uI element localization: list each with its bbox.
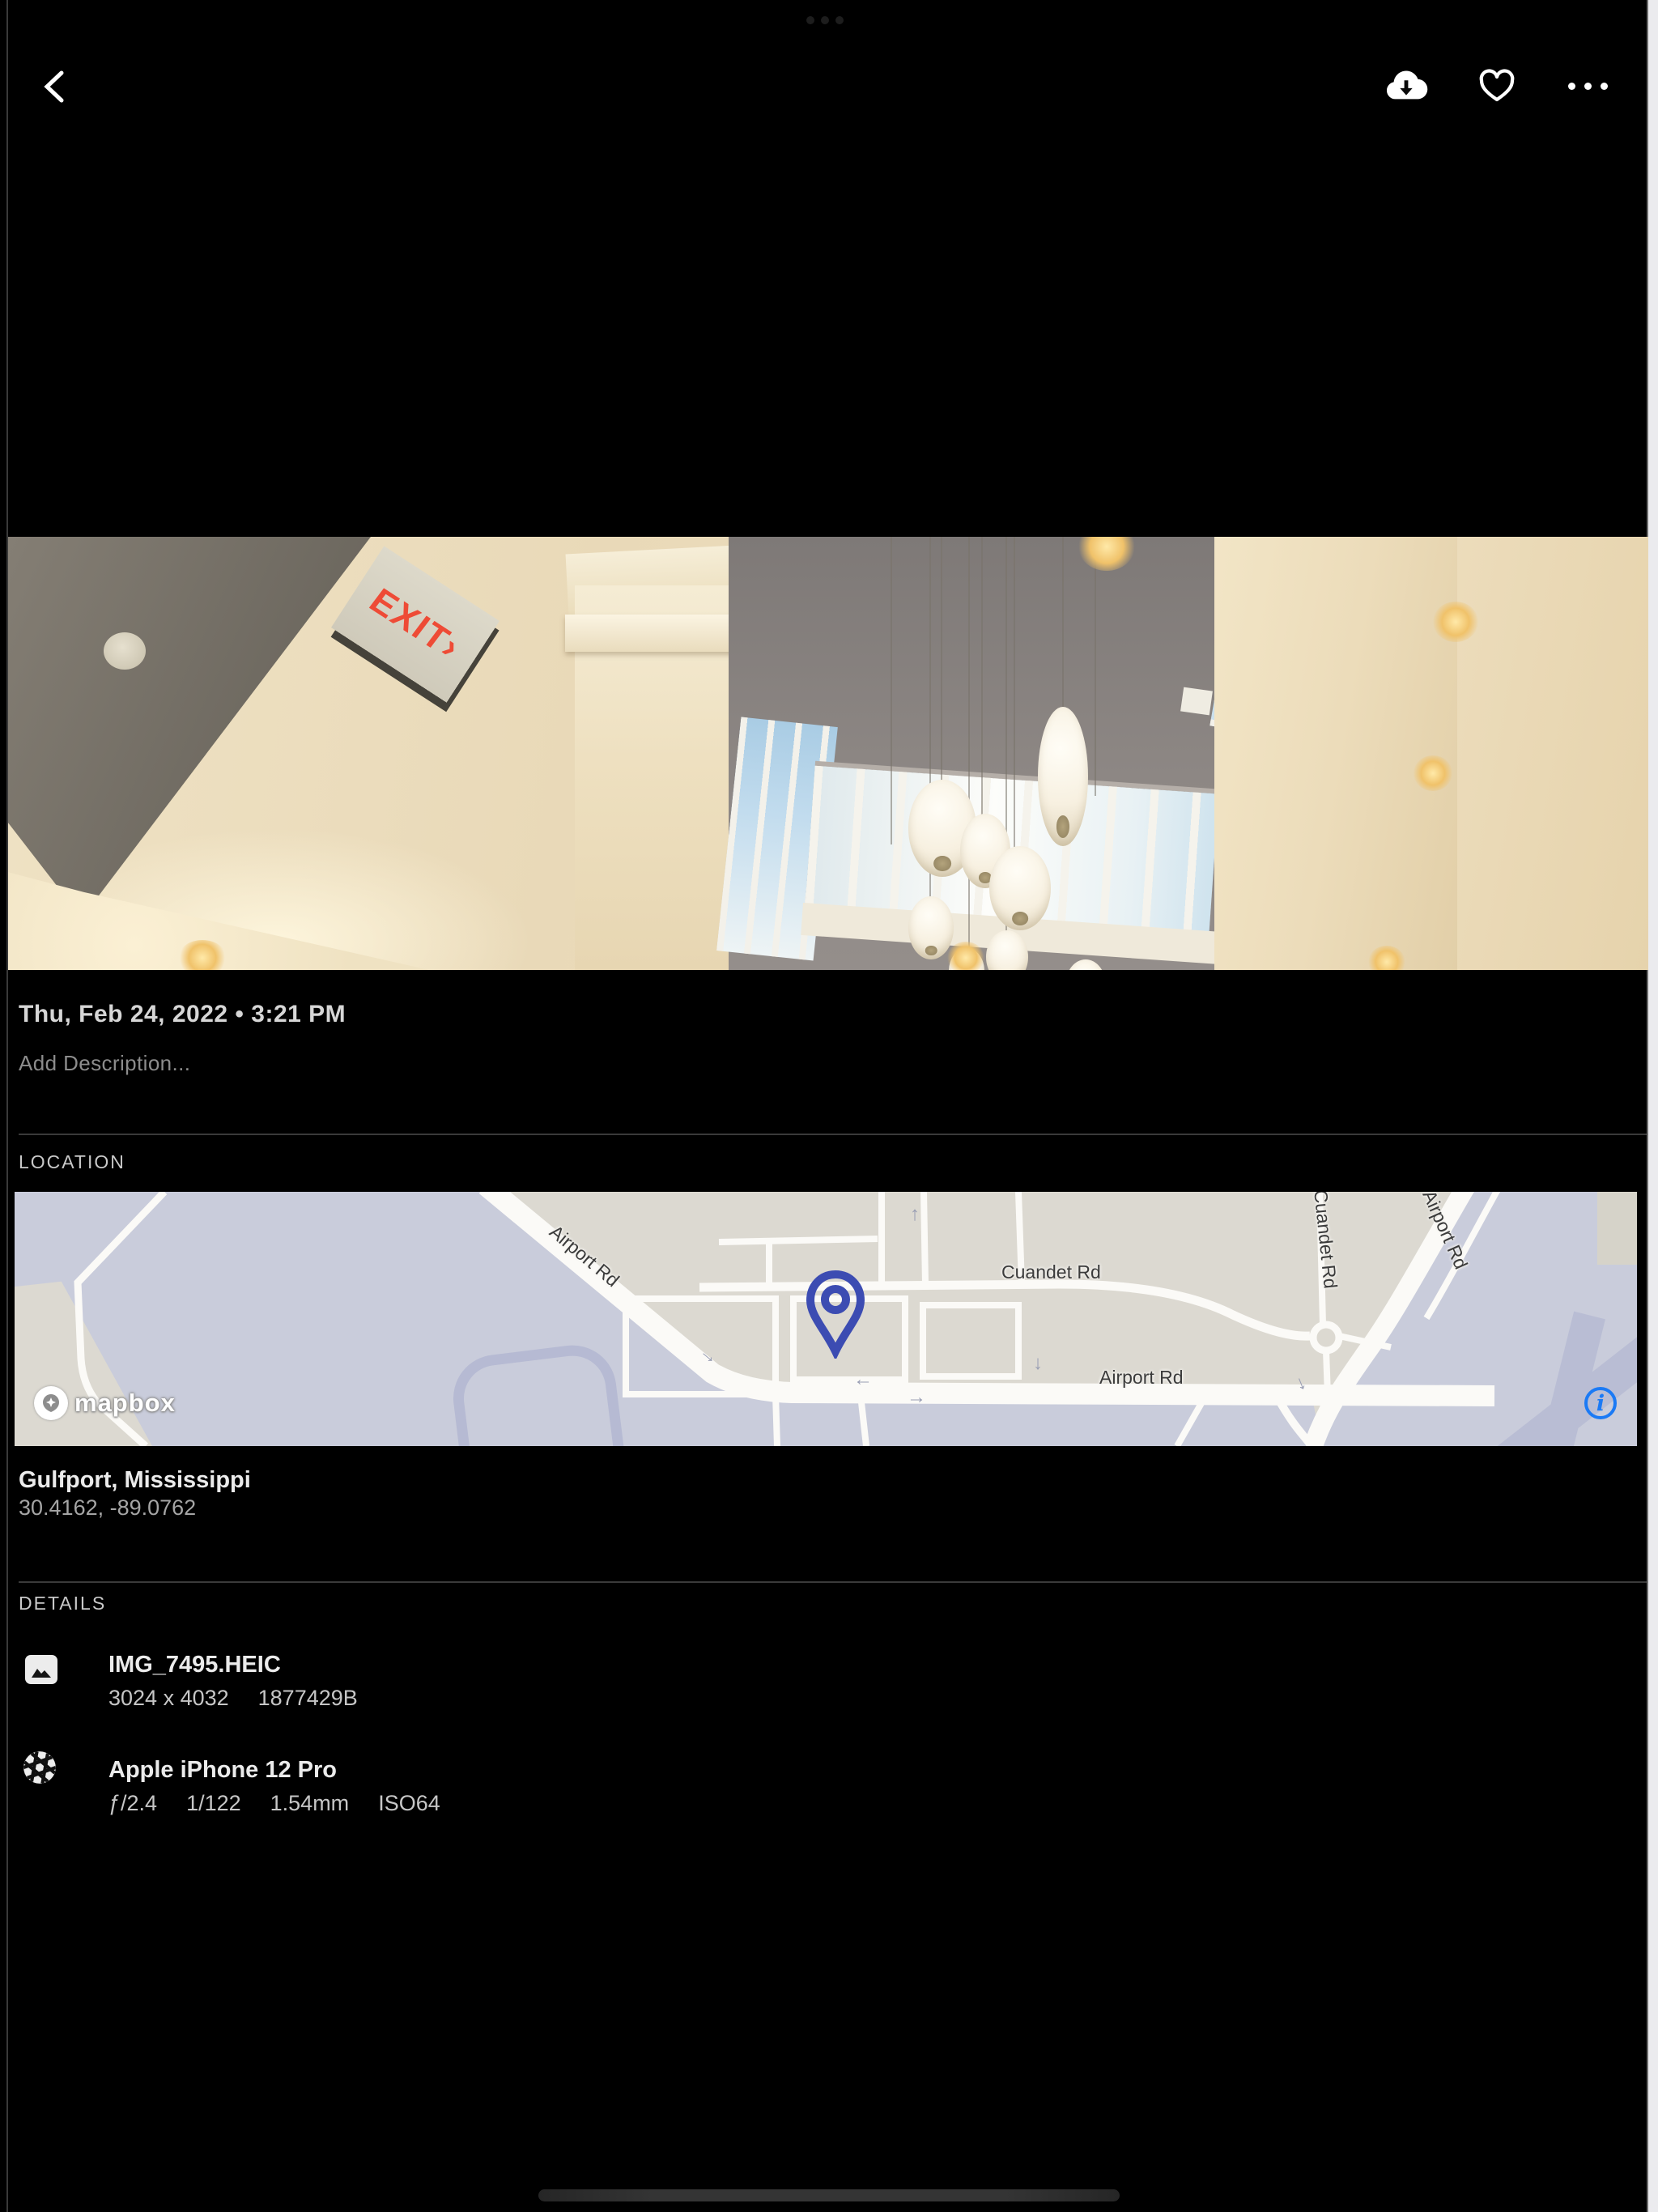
background-app-strip bbox=[1647, 0, 1658, 2212]
photo-exit-sign: EXIT› bbox=[331, 546, 500, 702]
lamp-cord bbox=[891, 537, 892, 844]
lamp-cord bbox=[1014, 537, 1015, 853]
back-button[interactable] bbox=[37, 66, 73, 107]
info-icon: i bbox=[1596, 1391, 1605, 1416]
location-map[interactable]: Airport Rd Cuandet Rd Airport Rd Airport… bbox=[15, 1192, 1637, 1446]
more-options-button[interactable] bbox=[1566, 66, 1609, 105]
mapbox-wordmark: mapbox bbox=[74, 1389, 176, 1418]
map-road-label: Airport Rd bbox=[1099, 1367, 1184, 1389]
photo-smoke-detector bbox=[104, 632, 146, 670]
photo-date: Thu, Feb 24, 2022 • 3:21 PM bbox=[19, 1001, 346, 1028]
chevron-left-icon bbox=[37, 66, 73, 107]
window-left-edge bbox=[6, 0, 8, 2212]
exit-sign-text: EXIT› bbox=[362, 581, 470, 668]
lamp-cord bbox=[981, 537, 983, 820]
photo-right-wall bbox=[1457, 537, 1648, 970]
map-direction-arrow: ← bbox=[853, 1368, 873, 1391]
photo-speaker-box bbox=[1180, 687, 1213, 716]
map-direction-arrow: ↑ bbox=[910, 1203, 920, 1226]
location-coordinates: 30.4162, -89.0762 bbox=[19, 1495, 196, 1521]
divider bbox=[19, 1134, 1647, 1135]
photo-column-molding bbox=[565, 615, 738, 652]
map-info-button[interactable]: i bbox=[1584, 1387, 1617, 1419]
pendant-lamp bbox=[989, 846, 1051, 930]
lamp-cord bbox=[1062, 537, 1064, 711]
mapbox-attribution[interactable]: mapbox bbox=[34, 1386, 176, 1420]
photo-preview[interactable]: EXIT› bbox=[8, 537, 1648, 970]
divider bbox=[19, 1581, 1647, 1583]
map-pin-icon bbox=[803, 1268, 868, 1359]
multitask-handle-icon[interactable] bbox=[806, 16, 844, 24]
camera-meta: ƒ/2.41/1221.54mmISO64 bbox=[108, 1791, 470, 1816]
photo-atrium bbox=[729, 537, 1214, 970]
file-name: IMG_7495.HEIC bbox=[108, 1652, 281, 1678]
favorite-button[interactable] bbox=[1475, 66, 1519, 105]
aperture-icon bbox=[21, 1749, 58, 1790]
lamp-cord bbox=[941, 537, 942, 788]
pendant-lamp bbox=[908, 896, 954, 959]
map-direction-arrow: → bbox=[907, 1386, 926, 1409]
lamp-cord bbox=[1095, 537, 1096, 796]
location-section-label: LOCATION bbox=[19, 1151, 125, 1173]
camera-name: Apple iPhone 12 Pro bbox=[108, 1757, 337, 1784]
details-section-label: DETAILS bbox=[19, 1593, 106, 1614]
location-place: Gulfport, Mississippi bbox=[19, 1467, 251, 1494]
lamp-cord bbox=[968, 537, 970, 966]
heart-icon bbox=[1477, 68, 1516, 104]
ellipsis-icon bbox=[1568, 83, 1608, 90]
recessed-light bbox=[947, 942, 984, 970]
map-road-label: Cuandet Rd bbox=[1001, 1261, 1101, 1283]
file-meta: 3024 x 40321877429B bbox=[108, 1686, 387, 1711]
map-direction-arrow: ↓ bbox=[1033, 1352, 1043, 1375]
recessed-light bbox=[1414, 755, 1452, 791]
recessed-light bbox=[1433, 602, 1478, 642]
pendant-lamp bbox=[1038, 707, 1088, 846]
mapbox-logo-icon bbox=[34, 1386, 68, 1420]
recessed-light bbox=[178, 940, 227, 970]
cloud-download-icon bbox=[1384, 69, 1428, 103]
image-file-icon bbox=[24, 1653, 58, 1690]
home-indicator[interactable] bbox=[538, 2189, 1120, 2201]
toolbar-actions bbox=[1384, 66, 1609, 105]
photo-right-pillar bbox=[1214, 537, 1457, 970]
pendant-lamp bbox=[1065, 959, 1106, 970]
download-button[interactable] bbox=[1384, 66, 1428, 105]
description-field[interactable]: Add Description... bbox=[19, 1051, 190, 1076]
